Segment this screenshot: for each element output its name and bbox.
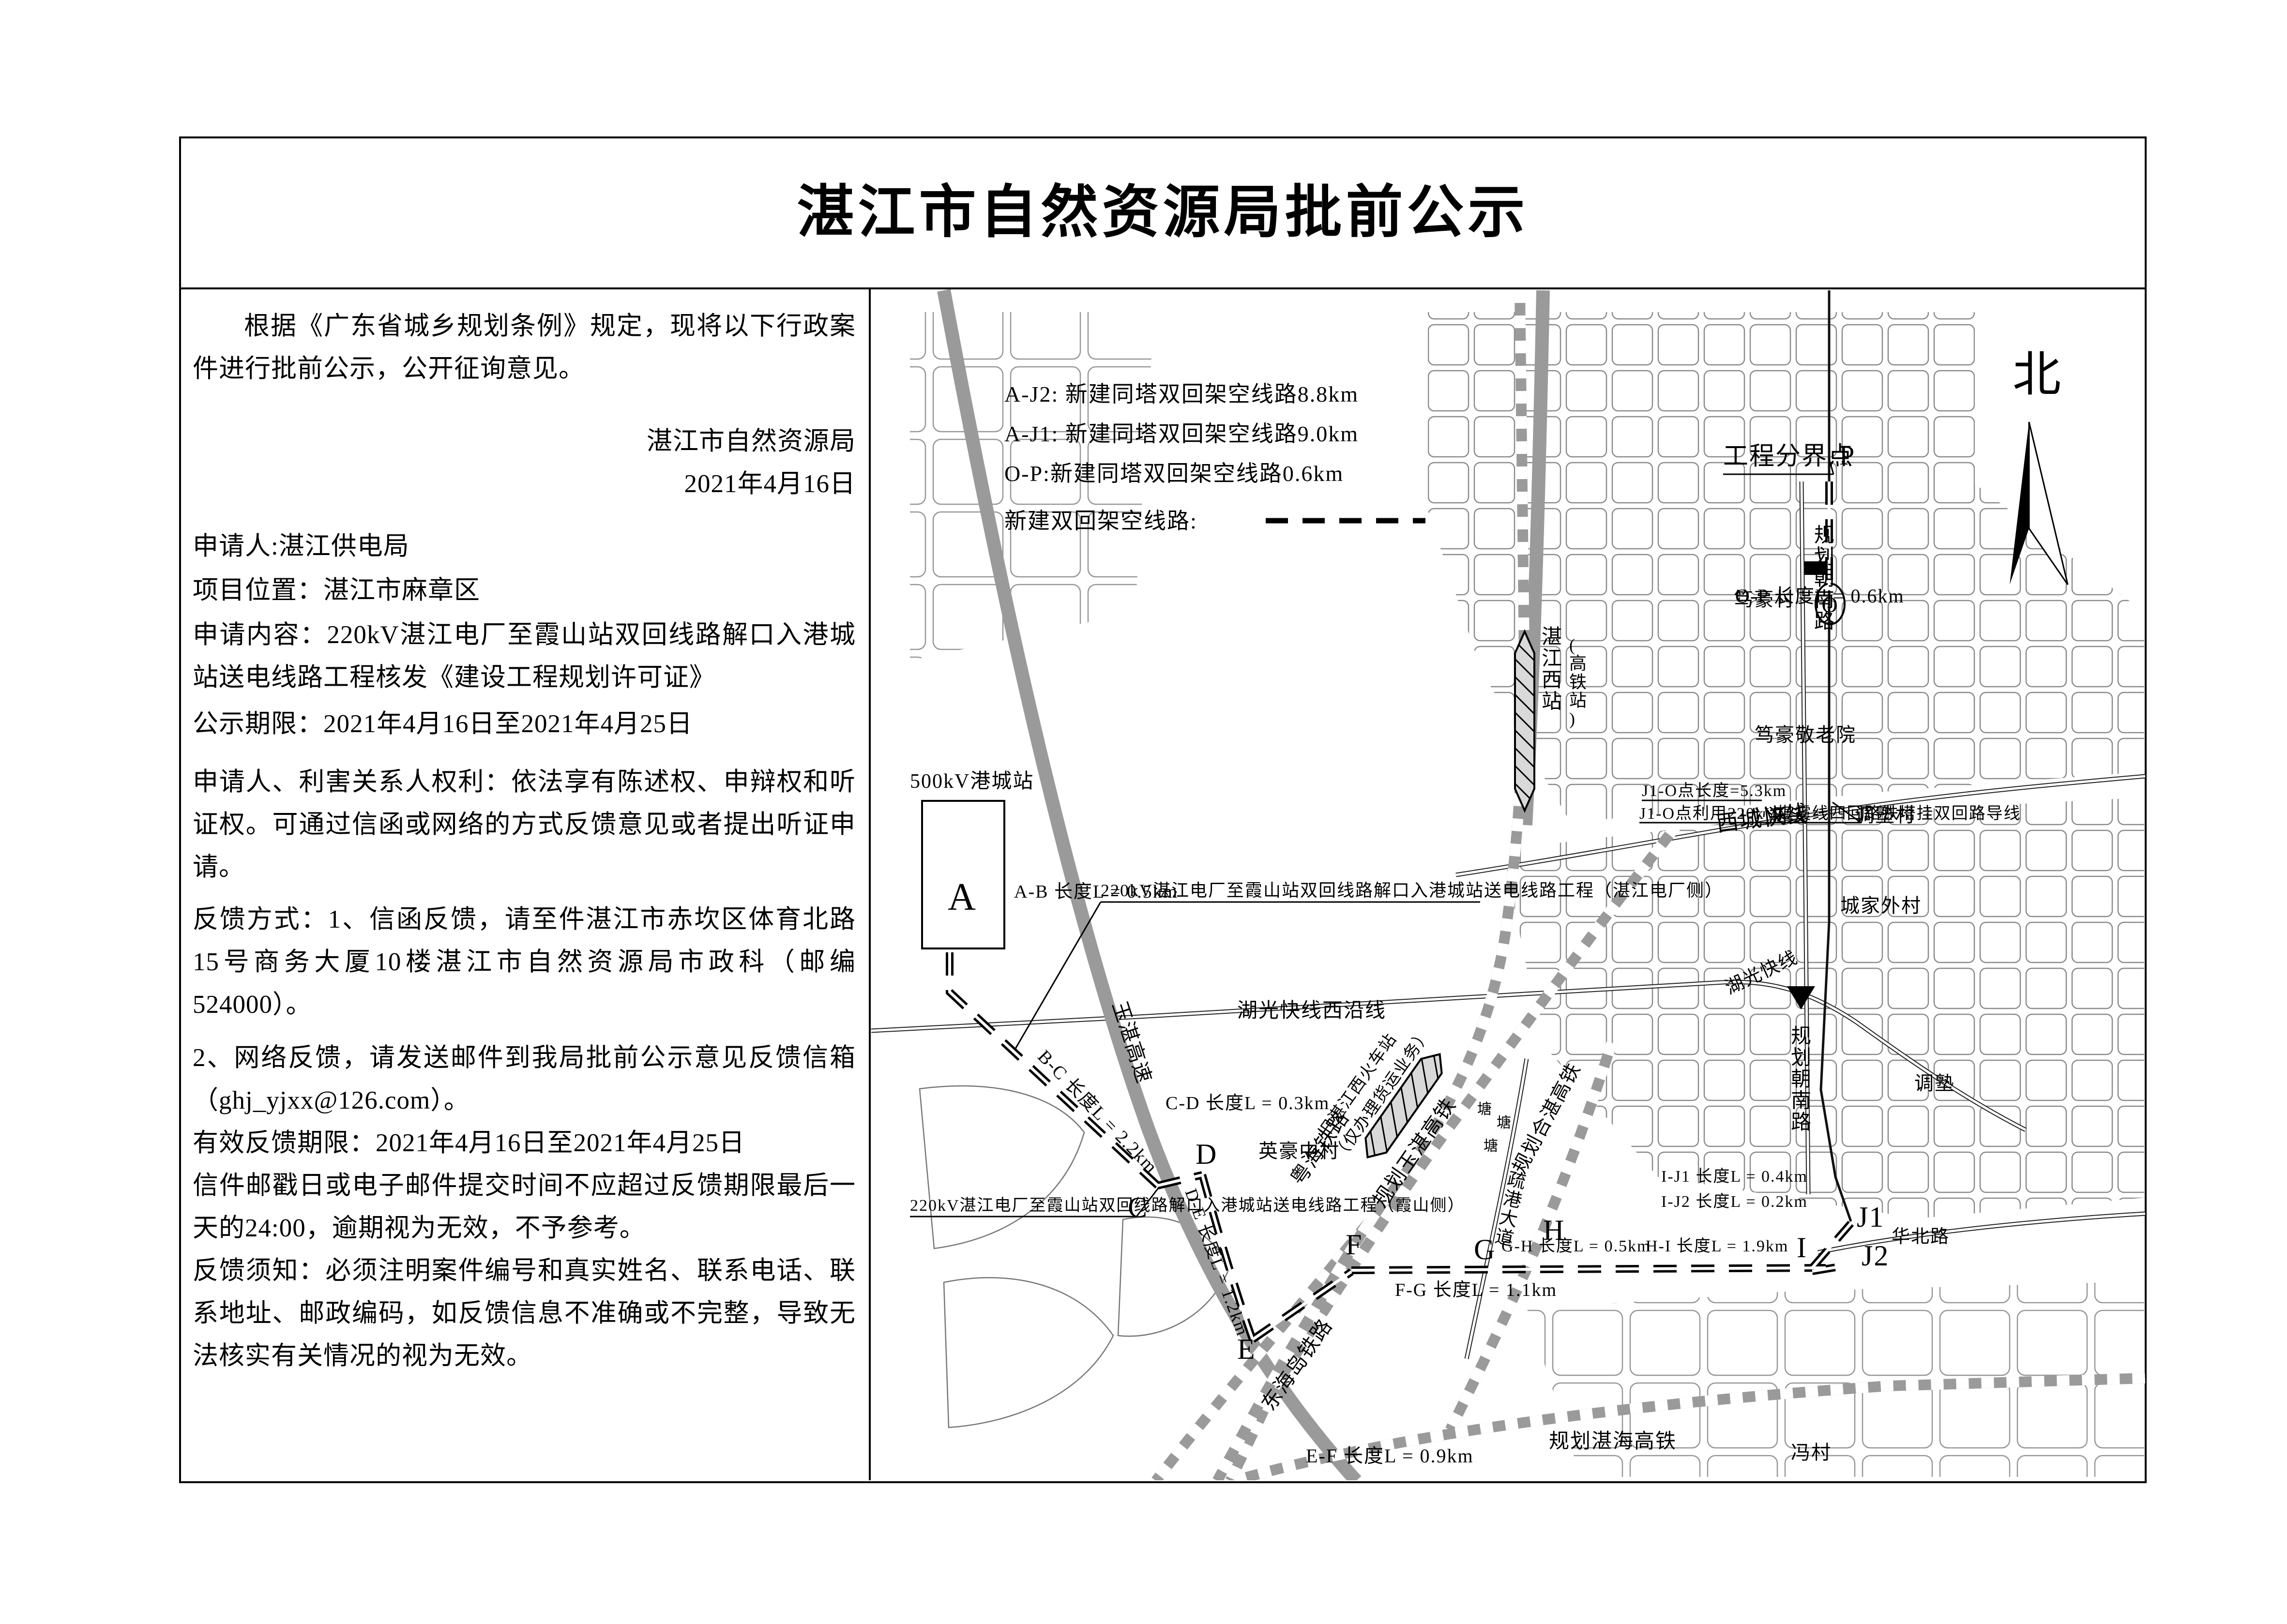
substation-a-box [922, 801, 1004, 948]
village-chengjiawai: 城家外村 [1840, 895, 1922, 917]
boundary-point-p: P [1839, 441, 1855, 471]
notice-location: 项目位置：湛江市麻章区 [193, 569, 856, 612]
j1o-note-label: J1-O点利用220kV椹霞线四回路铁塔挂双回路导线 [1639, 804, 2021, 823]
cd-length-label: C-D 长度L = 0.3km [1166, 1093, 1330, 1113]
road-chaonan-label-2: 规划朝南路 [1791, 1025, 1812, 1134]
point-j2: J2 [1862, 1240, 1889, 1272]
pond-3: 塘 [1484, 1138, 1499, 1154]
station-west-symbol [1515, 632, 1534, 811]
point-g: G [1474, 1233, 1496, 1265]
notice-agency: 湛江市自然资源局 [193, 420, 902, 463]
road-chaonan-label-1: 规划朝南路 [1814, 525, 1835, 633]
point-h: H [1543, 1214, 1565, 1246]
railway-zhanhai-hsr-label: 规划湛海高铁 [1549, 1430, 1677, 1453]
boundary-point-label: 工程分界点 [1723, 443, 1854, 470]
north-label: 北 [2013, 348, 2062, 402]
station-west-label-1: 湛江西站 [1542, 626, 1563, 713]
ef-length-label: E-F 长度L = 0.9km [1306, 1445, 1474, 1467]
legend-o-p: O-P:新建同塔双回架空线路0.6km [1004, 461, 1344, 486]
notice-feedback-online: 2、网络反馈，请发送邮件到我局批前公示意见反馈信箱（ghj_yjxx@126.c… [193, 1037, 856, 1122]
point-i: I [1797, 1232, 1807, 1263]
road-huguang-label: 湖光快线西沿线 [1237, 1000, 1386, 1022]
notice-period: 公示期限：2021年4月16日至2021年4月25日 [193, 703, 856, 745]
village-duhao-home: 笃豪敬老院 [1755, 724, 1856, 746]
ij2-length-label: I-J2 长度L = 0.2km [1661, 1192, 1808, 1211]
notice-feedback-mail: 反馈方式：1、信函反馈，请至件湛江市赤坎区体育北路15号商务大厦10楼湛江市自然… [193, 898, 856, 1026]
notice-requirement: 反馈须知：必须注明案件编号和真实姓名、联系电话、联系地址、邮政编码，如反馈信息不… [193, 1249, 856, 1377]
notice-rights: 申请人、利害关系人权利：依法享有陈述权、申辩权和听证权。可通过信函或网络的方式反… [193, 761, 856, 888]
notice-applicant: 申请人:湛江供电局 [193, 525, 856, 568]
notice-date: 2021年4月16日 [193, 463, 928, 505]
gh-length-label: G-H 长度L = 0.5km [1501, 1237, 1651, 1255]
point-d: D [1196, 1138, 1217, 1170]
pond-1: 塘 [1477, 1101, 1493, 1117]
fg-length-label: F-G 长度L = 1.1km [1395, 1280, 1557, 1300]
notice-deadline-note: 信件邮戳日或电子邮件提交时间不应超过反馈期限最后一天的24:00，逾期视为无效，… [193, 1164, 856, 1249]
map-svg: A-J2: 新建同塔双回架空线路8.8kmA-J1: 新建同塔双回架空线路9.0… [869, 289, 2147, 1480]
notice-feedback-period: 有效反馈期限：2021年4月16日至2021年4月25日 [193, 1122, 856, 1164]
legend-a-j2: A-J2: 新建同塔双回架空线路8.8km [1004, 382, 1359, 406]
page-title: 湛江市自然资源局批前公示 [179, 165, 2147, 248]
hi-length-label: H-I 长度L = 1.9km [1646, 1237, 1788, 1255]
point-a: A [948, 876, 977, 918]
road-huabei-label: 华北路 [1892, 1227, 1950, 1247]
notice-intro: 根据《广东省城乡规划条例》规定，现将以下行政案件进行批前公示，公开征询意见。 [193, 305, 856, 390]
village-yinghao: 英豪中村 [1258, 1140, 1340, 1162]
point-f: F [1346, 1229, 1363, 1261]
pond-2: 塘 [1497, 1115, 1512, 1131]
point-j1: J1 [1857, 1201, 1884, 1233]
station-gangcheng-label: 500kV港城站 [910, 770, 1034, 793]
legend-new-line: 新建双回架空线路: [1004, 509, 1197, 533]
notice-content: 申请内容：220kV湛江电厂至霞山站双回线路解口入港城站送电线路工程核发《建设工… [193, 614, 856, 699]
ij1-length-label: I-J1 长度L = 0.4km [1661, 1167, 1808, 1186]
village-diaoshu-2: 调塾 [1914, 1072, 1955, 1094]
village-hantou: 涵头 [1768, 805, 1808, 827]
village-diaoshu: 调塾村 [1855, 804, 1916, 826]
legend-a-j1: A-J1: 新建同塔双回架空线路9.0km [1004, 421, 1359, 446]
village-fengcun: 冯村 [1791, 1442, 1832, 1463]
point-e: E [1237, 1333, 1256, 1365]
village-duhao: 笃豪村 [1734, 588, 1795, 610]
j1o-length-label: J1-O点长度=5.3km [1642, 782, 1787, 800]
callout-plant-side: 220kV湛江电厂至霞山站双回线路解口入港城站送电线路工程（湛江电厂侧） [1101, 881, 1723, 900]
